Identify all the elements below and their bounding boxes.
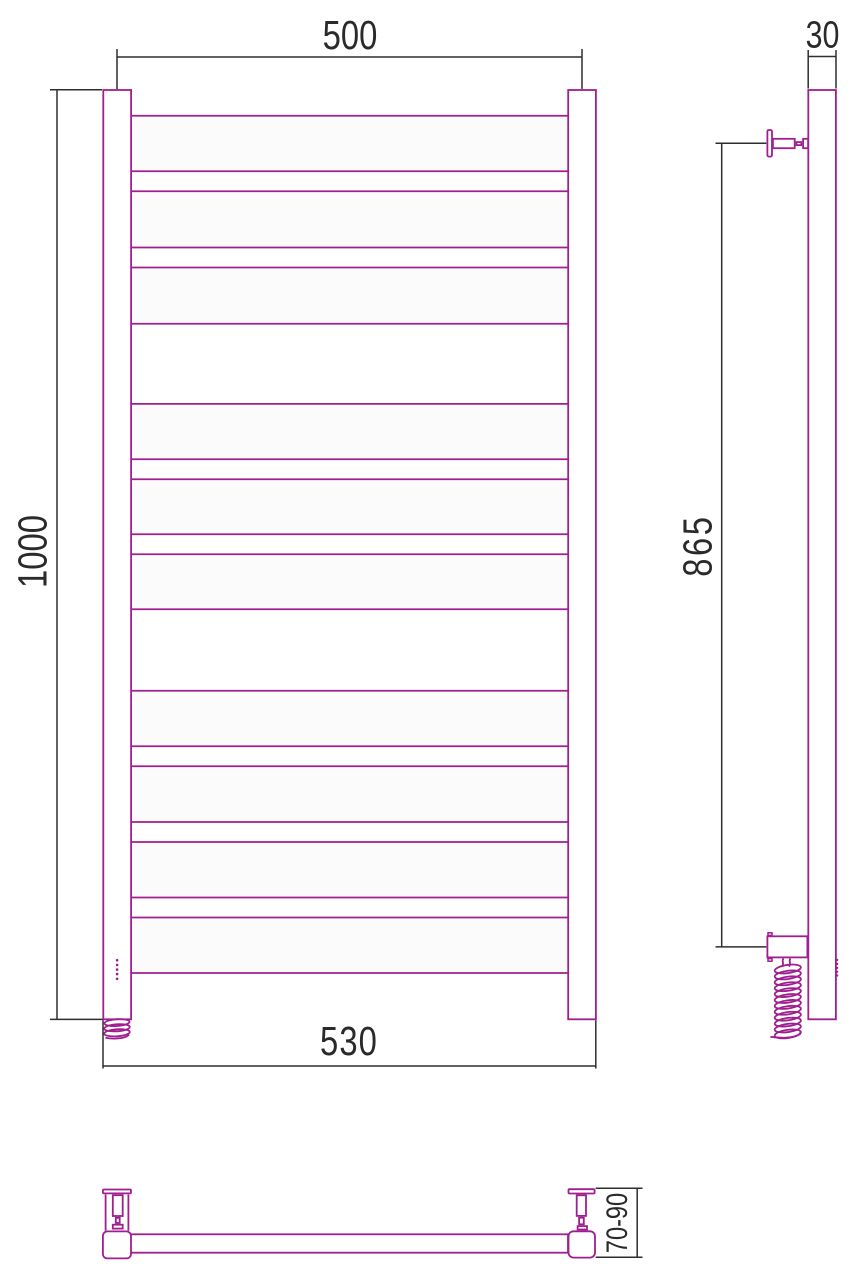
- svg-text:500: 500: [323, 11, 378, 57]
- svg-text:865: 865: [674, 514, 720, 576]
- svg-text:70-90: 70-90: [600, 1193, 633, 1253]
- svg-text:30: 30: [806, 14, 840, 56]
- svg-text:530: 530: [320, 1017, 378, 1063]
- svg-text:1000: 1000: [9, 515, 55, 588]
